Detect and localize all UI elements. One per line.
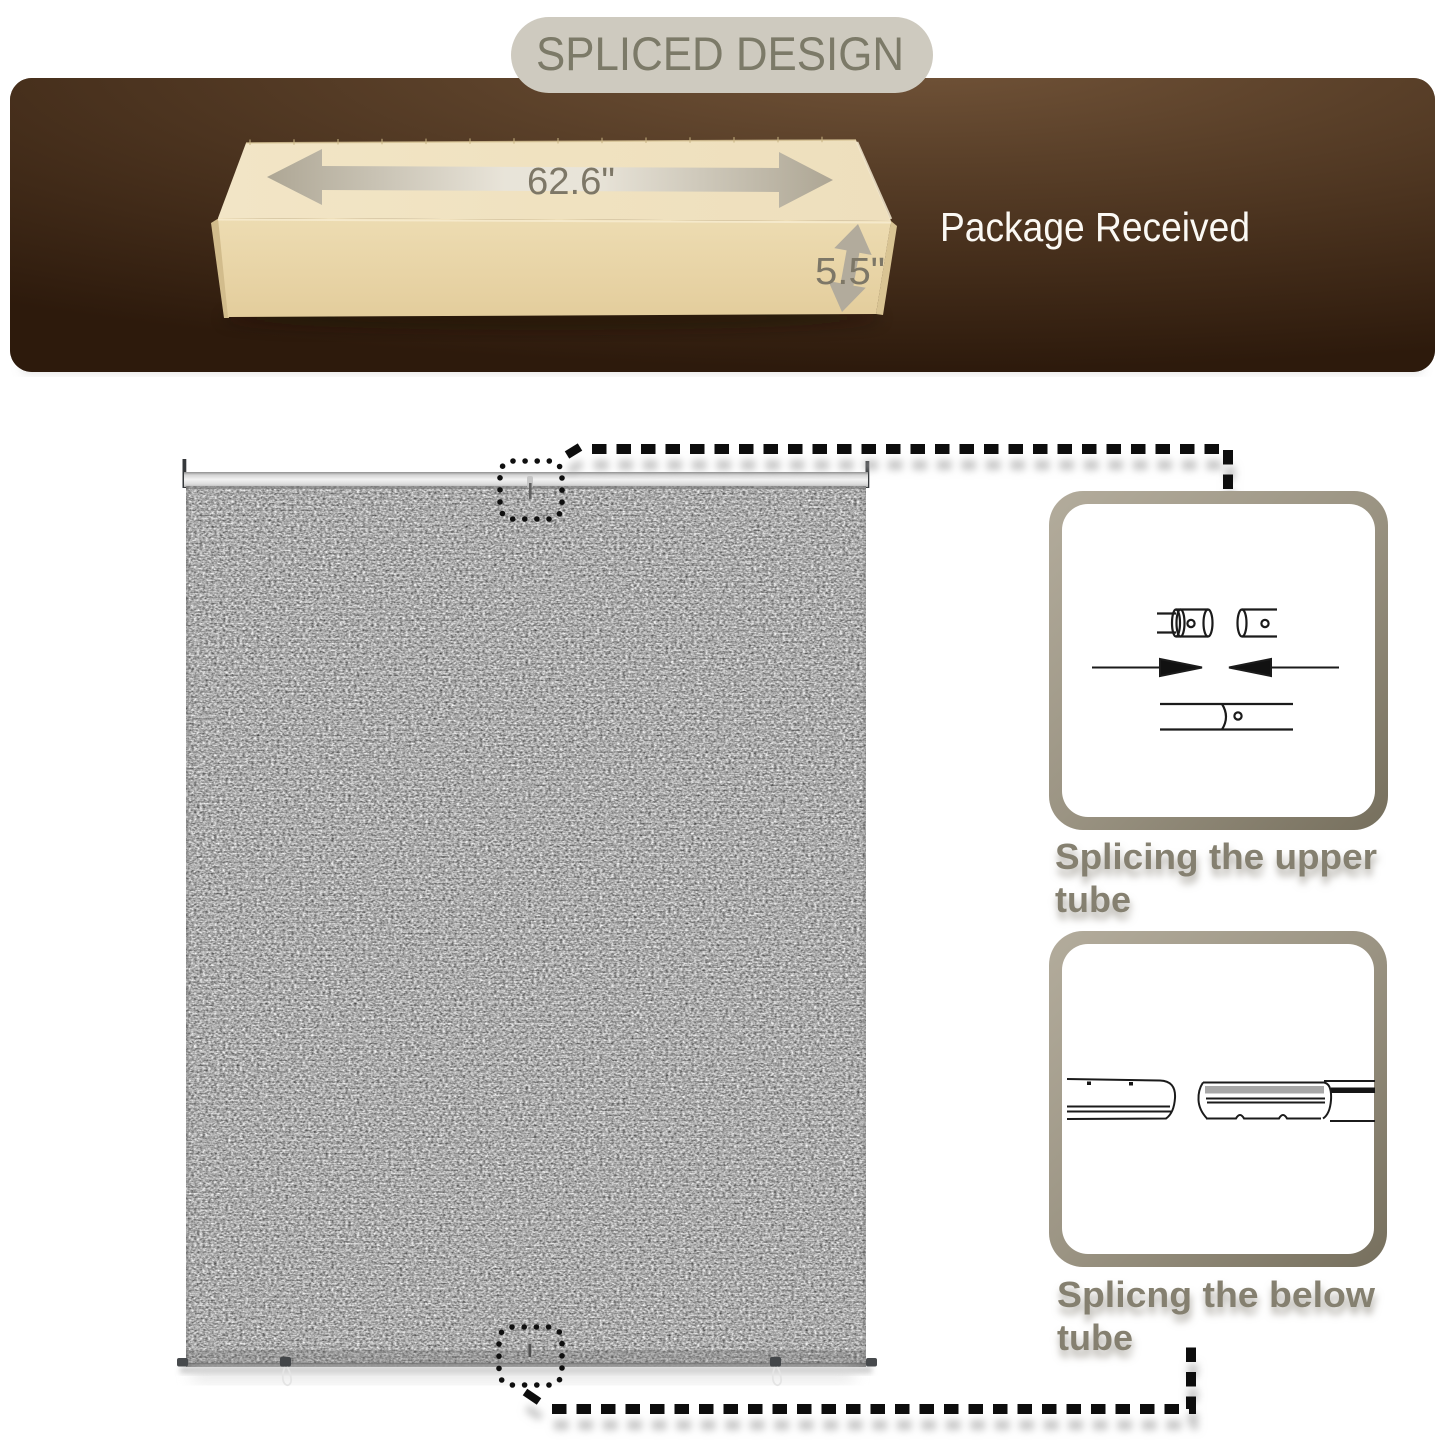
svg-text:5.5": 5.5": [815, 251, 885, 293]
svg-text:SPLICED DESIGN: SPLICED DESIGN: [536, 27, 904, 80]
svg-text:tube: tube: [1057, 1317, 1133, 1358]
svg-text:Package Received: Package Received: [940, 204, 1250, 250]
svg-text:Splicing the upper: Splicing the upper: [1055, 836, 1377, 877]
svg-text:62.6": 62.6": [527, 161, 615, 203]
svg-text:Splicng the below: Splicng the below: [1057, 1274, 1376, 1315]
svg-text:tube: tube: [1055, 879, 1131, 920]
